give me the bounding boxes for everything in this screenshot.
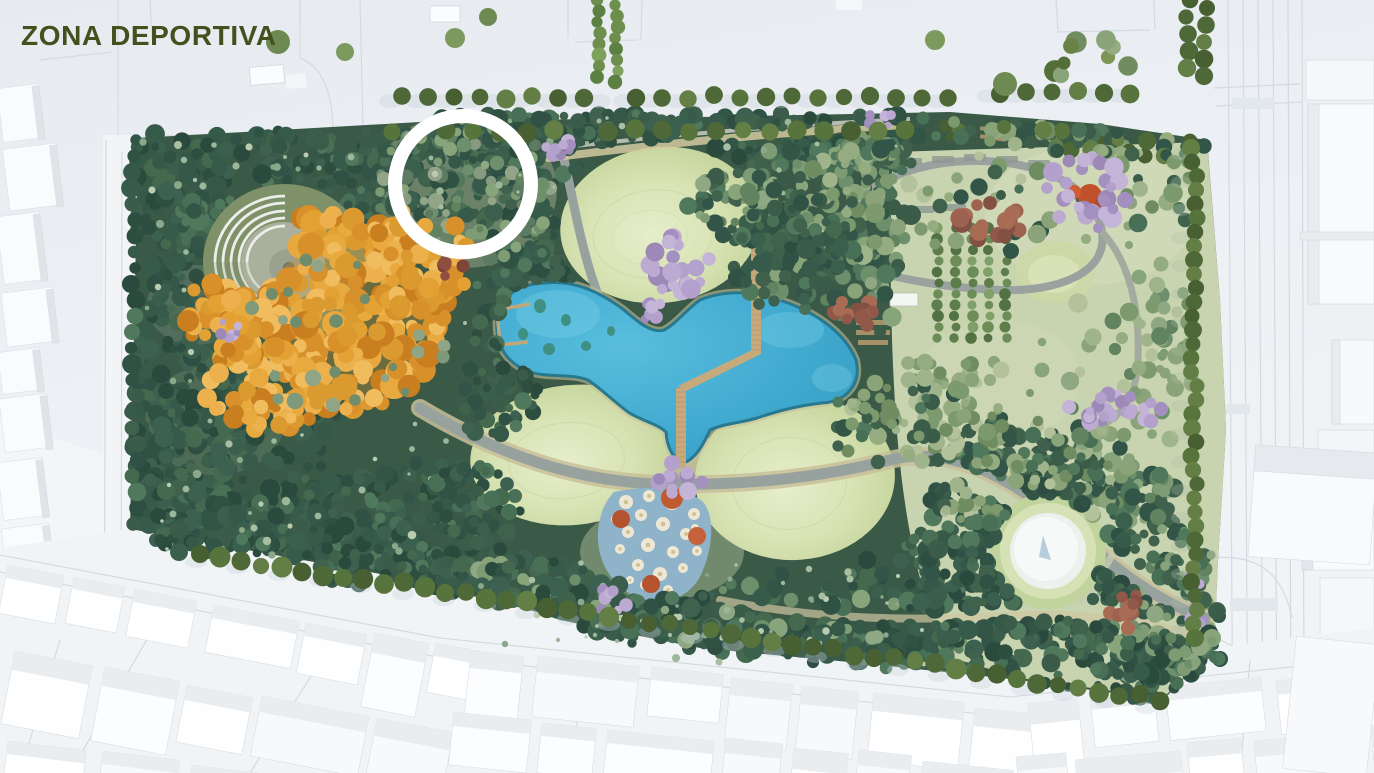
svg-text:ZONA DEPORTIVA: ZONA DEPORTIVA <box>21 20 277 51</box>
